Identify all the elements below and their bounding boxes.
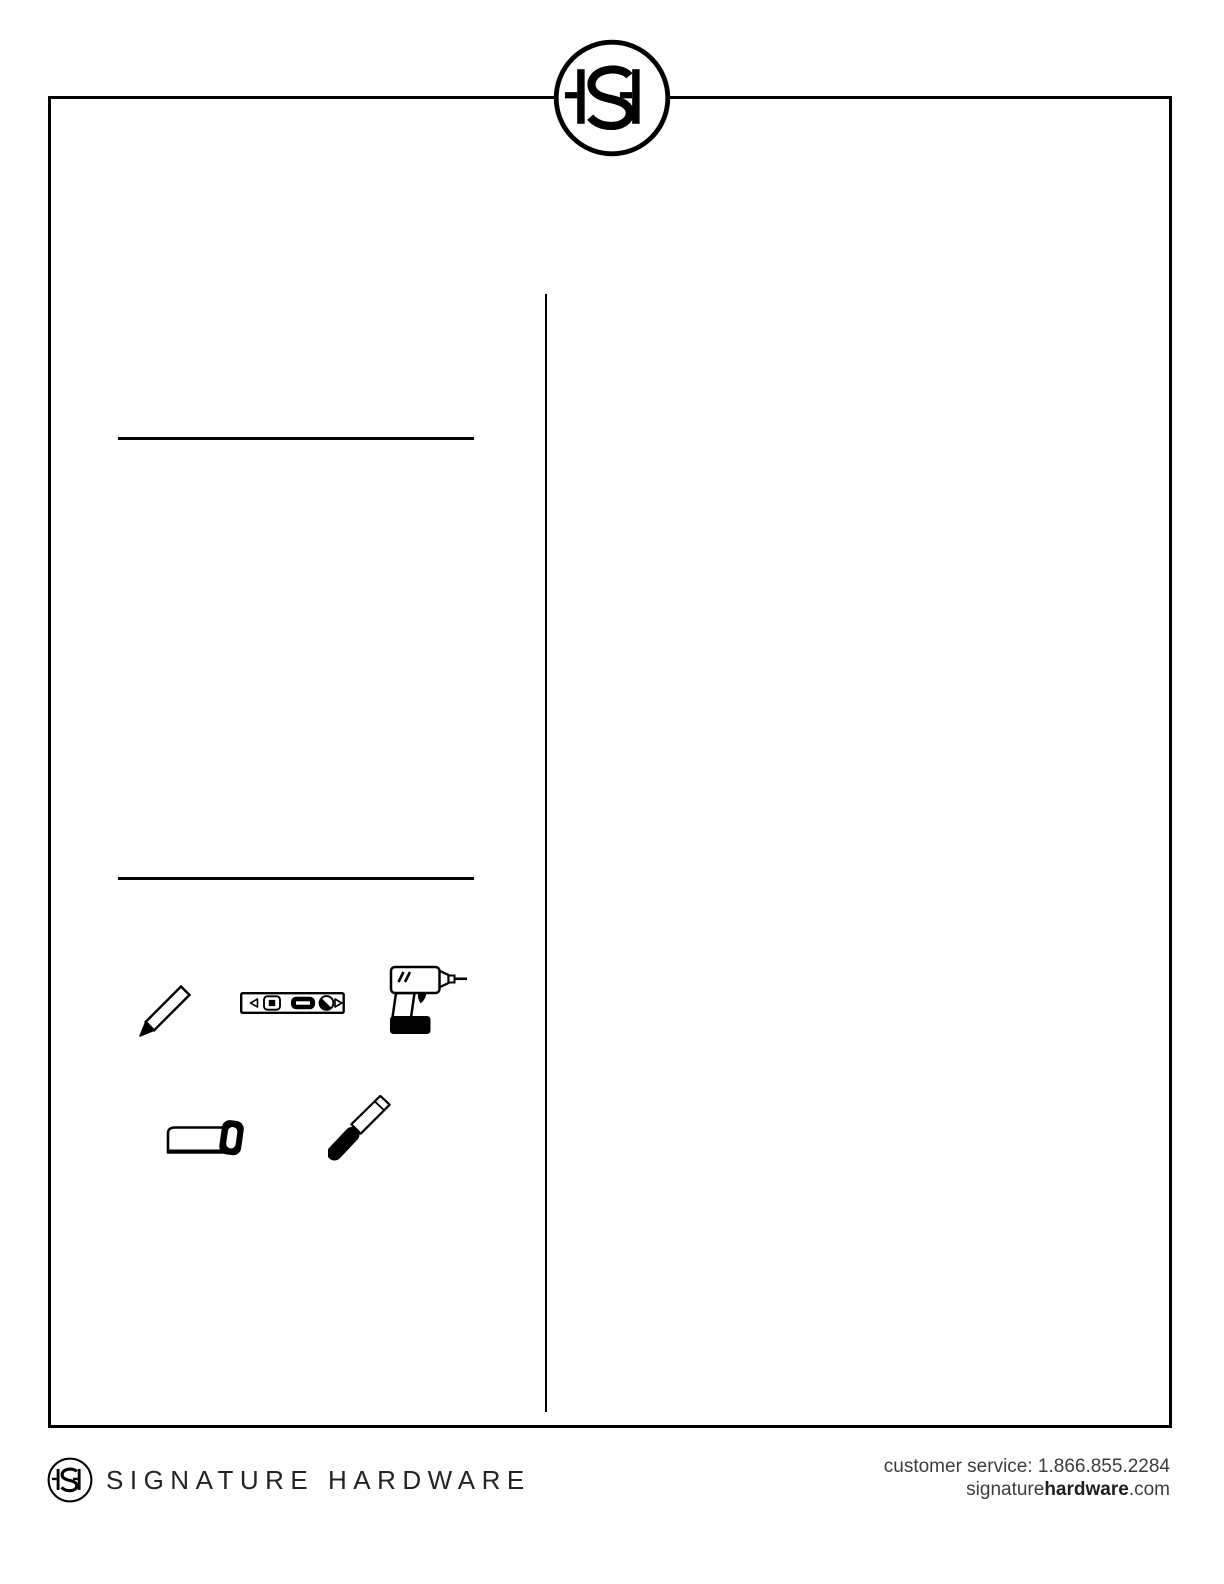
website-suffix: .com [1129, 1479, 1170, 1500]
column-divider [545, 294, 547, 1412]
level-icon [240, 991, 345, 1015]
chisel-icon [328, 1095, 394, 1162]
drill-icon [386, 955, 468, 1037]
brand-logo-badge [552, 38, 672, 158]
brand-name: SIGNATURE HARDWARE [106, 1465, 531, 1496]
website-line: signaturehardware.com [884, 1479, 1170, 1502]
website-prefix: signature [966, 1479, 1044, 1500]
pencil-icon [137, 979, 191, 1039]
customer-service-line: customer service: 1.866.855.2284 [884, 1456, 1170, 1479]
sh-monogram-icon [47, 1457, 93, 1503]
saw-icon [165, 1119, 245, 1157]
document-page: SIGNATURE HARDWARE customer service: 1.8… [0, 0, 1224, 1584]
website-highlight: hardware [1044, 1479, 1128, 1500]
page-border [48, 96, 1172, 1428]
footer-contact: customer service: 1.866.855.2284 signatu… [884, 1456, 1170, 1501]
section-divider-line [118, 437, 474, 440]
footer-brand: SIGNATURE HARDWARE [47, 1456, 531, 1504]
section-divider-line [118, 877, 474, 880]
sh-monogram-icon [552, 38, 672, 158]
